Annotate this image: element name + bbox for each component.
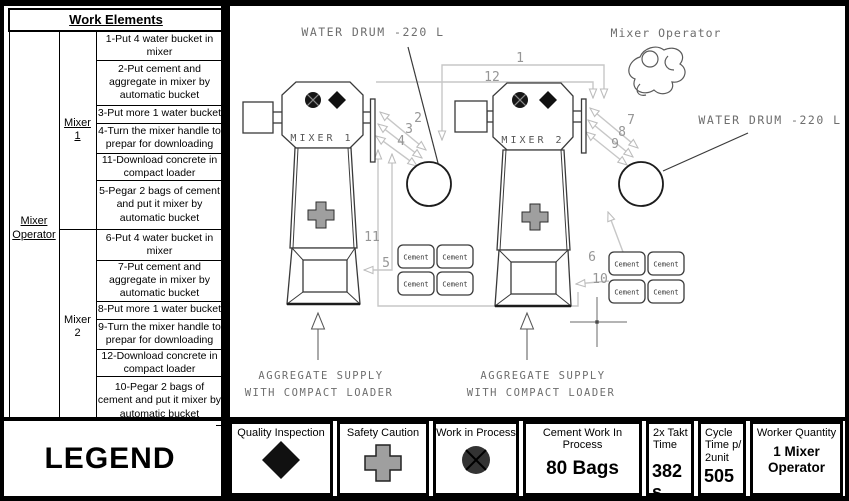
takt-time-label: 2x Takt Time	[649, 424, 691, 452]
step-cell: 9-Turn the mixer handle to prepar for do…	[96, 319, 223, 349]
legend-cement-wip: Cement Work In Process 80 Bags	[523, 421, 642, 496]
cement-bag: Cement	[442, 281, 467, 289]
water-drum-2-leader	[663, 133, 748, 171]
work-elements-header: Work Elements	[9, 9, 223, 31]
standard-work-layout-sheet: Work Elements Mixer Operator Mixer 1 1-P…	[0, 0, 849, 501]
mixer1-label: MIXER 1	[290, 133, 353, 144]
legend-cycle-time: Cycle Time p/ 2unit 505 s	[698, 421, 746, 496]
flow-number-8: 8	[618, 125, 626, 140]
step-cell: 4-Turn the mixer handle to prepar for do…	[96, 123, 223, 153]
cement-bag: Cement	[403, 254, 428, 262]
layout-diagram: MIXER 1 MIXER 2 Cement Cement Ce	[230, 6, 845, 418]
flow-number-10: 10	[592, 272, 608, 287]
worker-quantity-value: 1 Mixer Operator	[753, 444, 840, 475]
quality-inspection-label: Quality Inspection	[232, 424, 330, 439]
flow-number-12: 12	[484, 70, 500, 85]
cement-pallet-group-2: Cement Cement Cement Cement	[609, 252, 684, 303]
aggregate-supply-arrow-2	[521, 313, 534, 360]
step-cell: 8-Put more 1 water bucket	[96, 301, 223, 319]
work-elements-table: Work Elements Mixer Operator Mixer 1 1-P…	[8, 8, 224, 426]
mixer1-flange	[371, 99, 376, 162]
aggregate-label-1b: WITH COMPACT LOADER	[245, 387, 394, 399]
legend-work-in-process: Work in Process	[433, 421, 519, 496]
cement-bag: Cement	[403, 281, 428, 289]
work-in-process-label: Work in Process	[436, 424, 516, 439]
step-cell: 11-Download concrete in compact loader	[96, 153, 223, 180]
worker-quantity-label: Worker Quantity	[753, 424, 840, 439]
step-cell: 6-Put 4 water bucket in mixer	[96, 229, 223, 260]
frame-left	[0, 0, 4, 501]
aggregate-supply-arrow-1	[312, 313, 325, 360]
cement-bag: Cement	[442, 254, 467, 262]
water-drum-right-label: WATER DRUM -220 L	[698, 113, 841, 127]
wip-circle-icon	[459, 443, 493, 479]
aggregate-label-2a: AGGREGATE SUPPLY	[480, 370, 605, 382]
cement-bag: Cement	[653, 289, 678, 297]
flow-number-9: 9	[611, 137, 619, 152]
flow-number-3: 3	[405, 122, 413, 137]
flow-number-7: 7	[627, 113, 635, 128]
water-drum-1	[407, 162, 451, 206]
mixer2-flange	[582, 99, 587, 153]
flow-number-11: 11	[364, 230, 380, 245]
flow-number-1: 1	[516, 51, 524, 66]
mixer2-group-label: Mixer 2	[59, 229, 96, 425]
flow-number-5: 5	[382, 256, 390, 271]
flow-number-2: 2	[414, 111, 422, 126]
mixer-2: MIXER 2	[455, 83, 586, 306]
mixer1-hopper-inner	[303, 260, 347, 292]
cement-wip-label: Cement Work In Process	[526, 424, 639, 452]
step-cell: 7-Put cement and aggregate in mixer by a…	[96, 260, 223, 301]
step-cell: 5-Pegar 2 bags of cement and put it mixe…	[96, 180, 223, 229]
mixer1-group-label: Mixer 1	[59, 31, 96, 229]
legend-takt-time: 2x Takt Time 382 s	[646, 421, 694, 496]
mixer1-chute	[290, 148, 357, 248]
mixer1-motor	[243, 102, 273, 133]
safety-caution-label: Safety Caution	[340, 424, 426, 439]
legend-quality-inspection: Quality Inspection	[229, 421, 333, 496]
flow-path-6	[608, 212, 623, 252]
mixer2-chute	[497, 150, 570, 250]
water-drum-top-label: WATER DRUM -220 L	[301, 25, 444, 39]
cement-bag: Cement	[614, 261, 639, 269]
cement-pallet-group-1: Cement Cement Cement Cement	[398, 245, 473, 295]
cement-bag: Cement	[614, 289, 639, 297]
takt-time-value: 382 s	[649, 461, 691, 501]
mixer-1: MIXER 1	[243, 82, 375, 304]
legend-title: LEGEND	[4, 421, 216, 496]
aggregate-label-1a: AGGREGATE SUPPLY	[258, 370, 383, 382]
frame-top	[0, 0, 849, 6]
cement-wip-value: 80 Bags	[526, 458, 639, 480]
cycle-time-label: Cycle Time p/ 2unit	[701, 424, 743, 464]
mixer-operator-label: Mixer Operator	[611, 26, 722, 40]
mixer2-motor	[455, 101, 487, 132]
step-cell: 12-Download concrete in compact loader	[96, 349, 223, 376]
mixer2-hopper-inner	[511, 262, 556, 294]
cement-bag: Cement	[653, 261, 678, 269]
step-cell: 3-Put more 1 water bucket	[96, 105, 223, 123]
water-drum-2	[619, 162, 663, 206]
legend-safety-caution: Safety Caution	[337, 421, 429, 496]
step-cell: 2-Put cement and aggregate in mixer by a…	[96, 60, 223, 105]
mixer2-label: MIXER 2	[501, 135, 564, 146]
mixer-operator-person-icon	[629, 47, 685, 95]
aggregate-label-2b: WITH COMPACT LOADER	[467, 387, 616, 399]
legend-worker-quantity: Worker Quantity 1 Mixer Operator	[750, 421, 843, 496]
frame-bottom	[0, 496, 849, 501]
quality-diamond-icon	[259, 439, 303, 481]
safety-cross-icon	[363, 443, 403, 485]
flow-number-4: 4	[397, 134, 405, 149]
water-drum-1-leader	[408, 47, 438, 163]
operator-cell: Mixer Operator	[9, 31, 59, 426]
flow-number-6: 6	[588, 250, 596, 265]
frame-right	[845, 0, 849, 501]
step-cell: 1-Put 4 water bucket in mixer	[96, 31, 223, 60]
